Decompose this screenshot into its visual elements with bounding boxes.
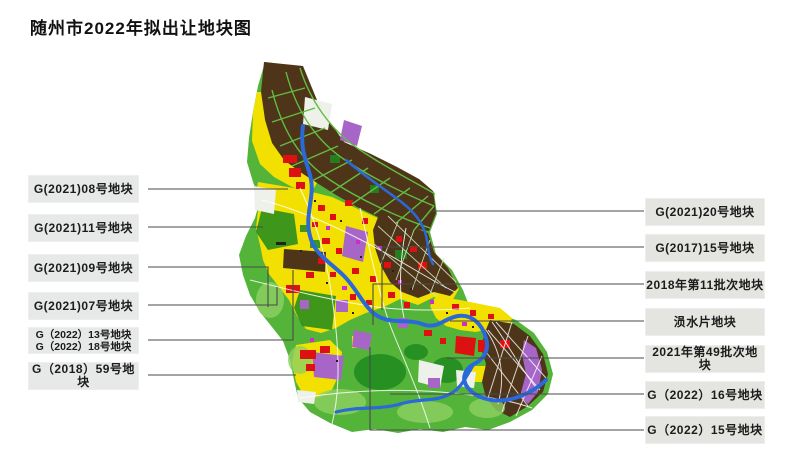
plot-label-g2021-09: G(2021)09号地块 (28, 254, 139, 282)
screenshot-canvas: 随州市2022年拟出让地块图 (0, 0, 800, 458)
plot-label-g2017-15: G(2017)15号地块 (645, 234, 765, 262)
plot-label-g2022-15: G（2022）15号地块 (645, 416, 765, 444)
plot-label-g2018-59: G（2018）59号地块 (28, 362, 139, 390)
plot-label-g2021-11: G(2021)11号地块 (28, 214, 139, 242)
plot-label-2018-batch11: 2018年第11批次地块 (645, 271, 765, 299)
plot-label-g2022-13-18: G（2022）13号地块 G（2022）18号地块 (28, 327, 139, 354)
plot-label-g2022-16: G（2022）16号地块 (645, 381, 765, 409)
plot-label-2021-batch49: 2021年第49批次地块 (645, 345, 765, 373)
plot-label-g2021-08: G(2021)08号地块 (28, 175, 139, 203)
plot-label-g2021-07: G(2021)07号地块 (28, 292, 139, 320)
plot-label-g2021-20: G(2021)20号地块 (645, 198, 765, 226)
plot-label-yunshui: 涢水片地块 (645, 308, 765, 336)
